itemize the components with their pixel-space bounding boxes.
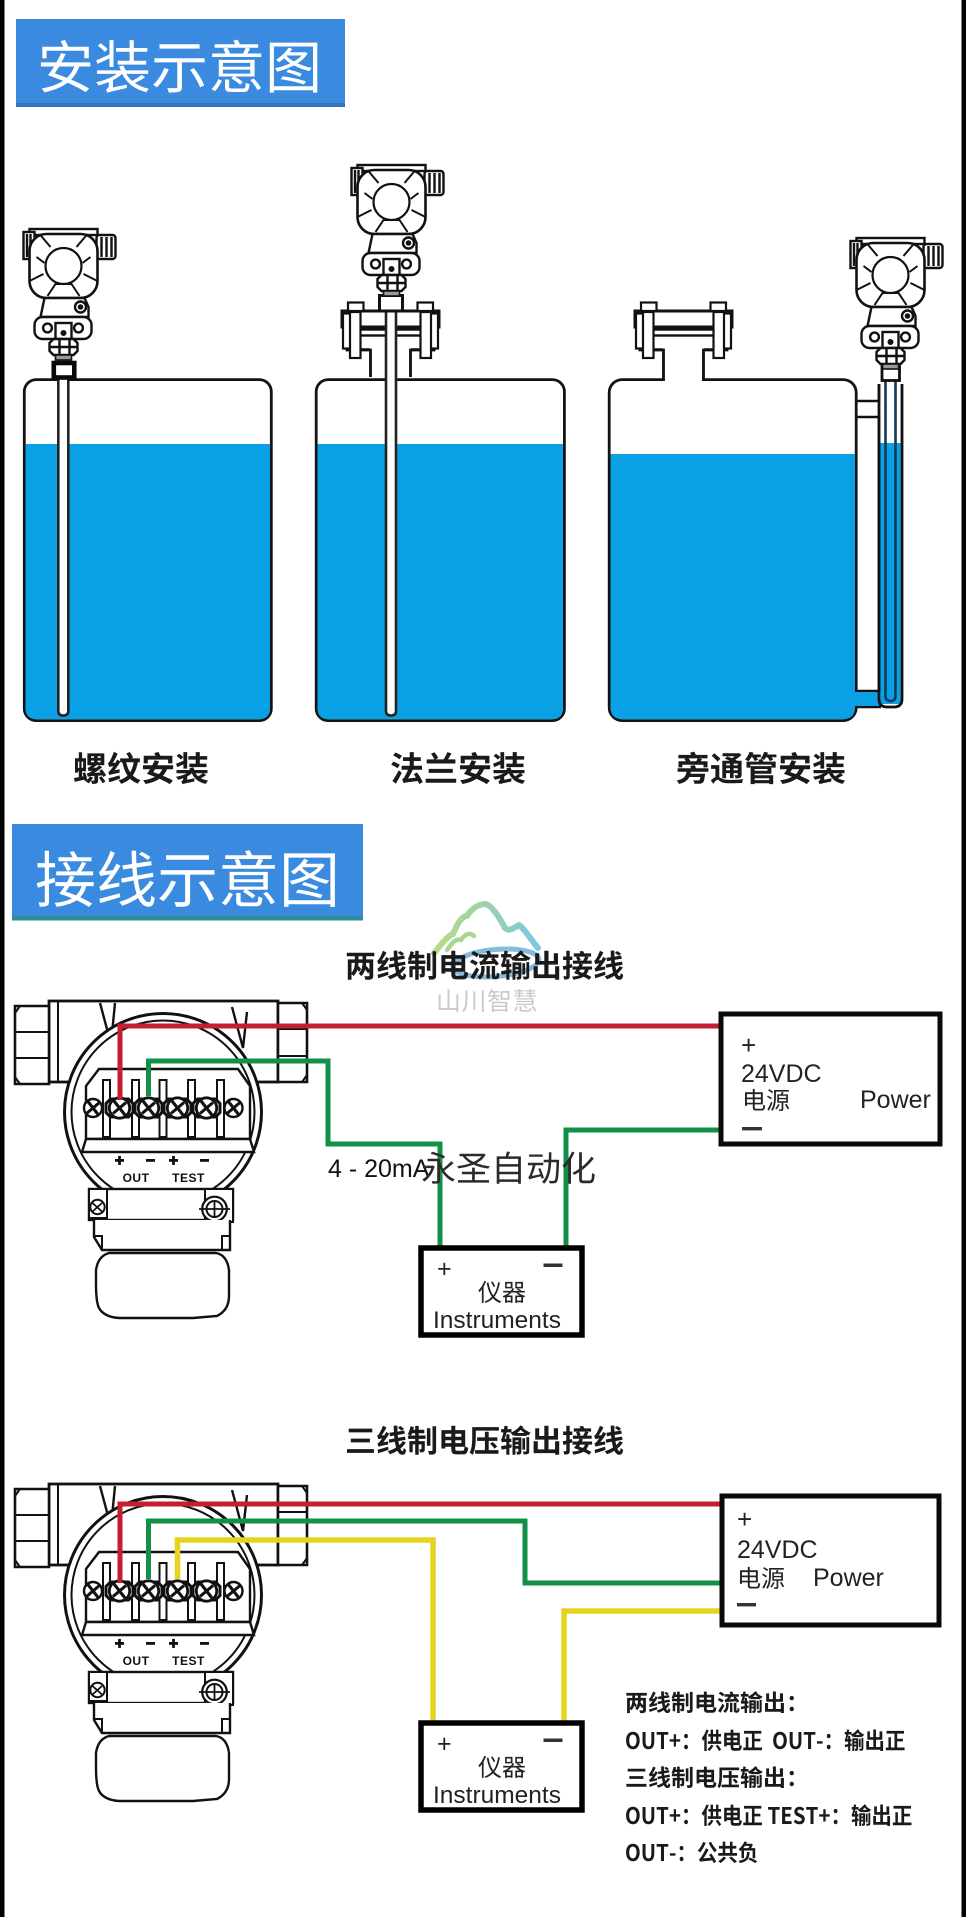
svg-text:Instruments: Instruments — [433, 1307, 561, 1334]
svg-text:4 - 20mA: 4 - 20mA — [328, 1155, 430, 1183]
svg-text:Power: Power — [813, 1564, 884, 1592]
svg-text:Power: Power — [860, 1086, 931, 1114]
svg-text:+: + — [737, 1504, 752, 1534]
svg-text:+: + — [437, 1730, 452, 1758]
svg-text:24VDC: 24VDC — [737, 1536, 818, 1564]
svg-text:Instruments: Instruments — [433, 1782, 561, 1809]
svg-text:+: + — [437, 1255, 452, 1283]
svg-text:24VDC: 24VDC — [741, 1060, 822, 1088]
svg-text:+: + — [741, 1030, 756, 1060]
